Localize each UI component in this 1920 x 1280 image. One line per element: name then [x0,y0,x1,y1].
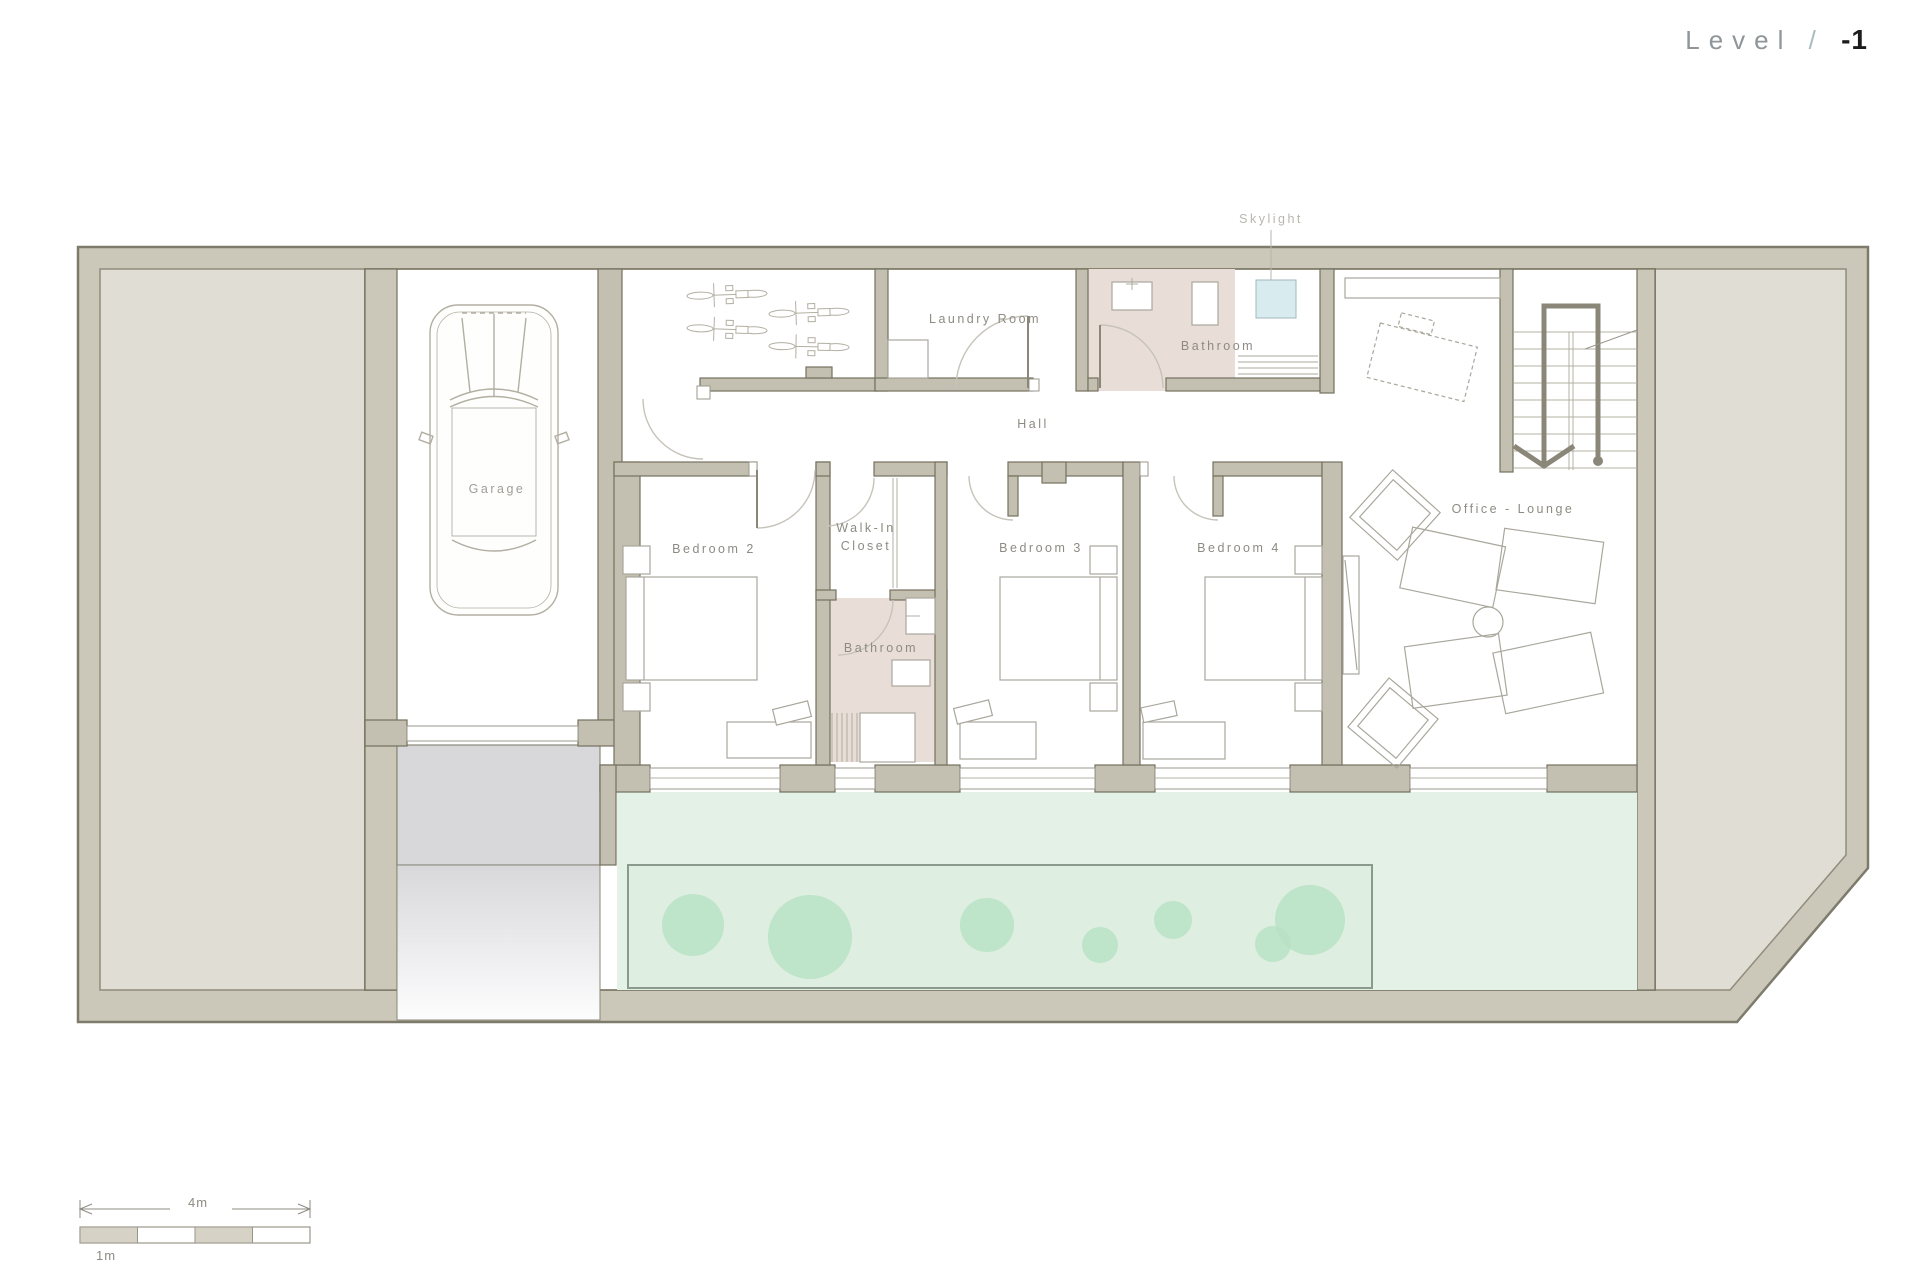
skylight-glass [1256,280,1296,318]
level-title-number: -1 [1841,24,1868,55]
washing-machine-icon [888,340,928,378]
desk-icon [727,722,811,758]
west-wall [365,269,397,990]
room-label-bedroom4: Bedroom 4 [1197,541,1281,555]
nightstand-icon [1090,546,1117,574]
nightstand-icon [1295,546,1322,574]
floor-plan-page: Level / -1 Garage Laundry Room Bathroom … [0,0,1920,1280]
room-label-garage: Garage [469,482,526,496]
driveway-ramp [397,745,600,1020]
toilet-icon [1192,282,1218,325]
toilet-icon [892,660,930,686]
level-title-word: Level [1685,25,1792,55]
room-label-walk-in-closet: Walk-In Closet [811,519,921,555]
garage-door [407,726,578,741]
floor-plan-svg [0,0,1920,1280]
scale-unit-label: 1m [96,1248,116,1263]
room-label-bathroom-top: Bathroom [1181,339,1255,353]
level-title-separator: / [1809,25,1825,55]
car-icon [419,305,569,615]
annotation-skylight: Skylight [1239,212,1303,226]
scale-total-label: 4m [178,1195,218,1210]
nightstand-icon [623,683,650,711]
desk-icon [1143,722,1225,759]
room-label-hall: Hall [1017,417,1049,431]
room-label-laundry: Laundry Room [929,312,1041,326]
garden [617,792,1637,990]
terrain-left [100,269,365,990]
level-title: Level / -1 [1685,24,1868,56]
shower-tray-icon [860,713,915,762]
terrain-right [1655,269,1846,990]
nightstand-icon [623,546,650,574]
counter [1345,278,1500,298]
room-label-bedroom2: Bedroom 2 [672,542,756,556]
desk-icon [960,722,1036,759]
east-wall [1637,269,1655,990]
room-label-bedroom3: Bedroom 3 [999,541,1083,555]
room-label-bathroom-mid: Bathroom [844,641,918,655]
room-label-office-lounge: Office - Lounge [1452,502,1575,516]
nightstand-icon [1090,683,1117,711]
bed-icon [626,577,757,680]
nightstand-icon [1295,683,1322,711]
